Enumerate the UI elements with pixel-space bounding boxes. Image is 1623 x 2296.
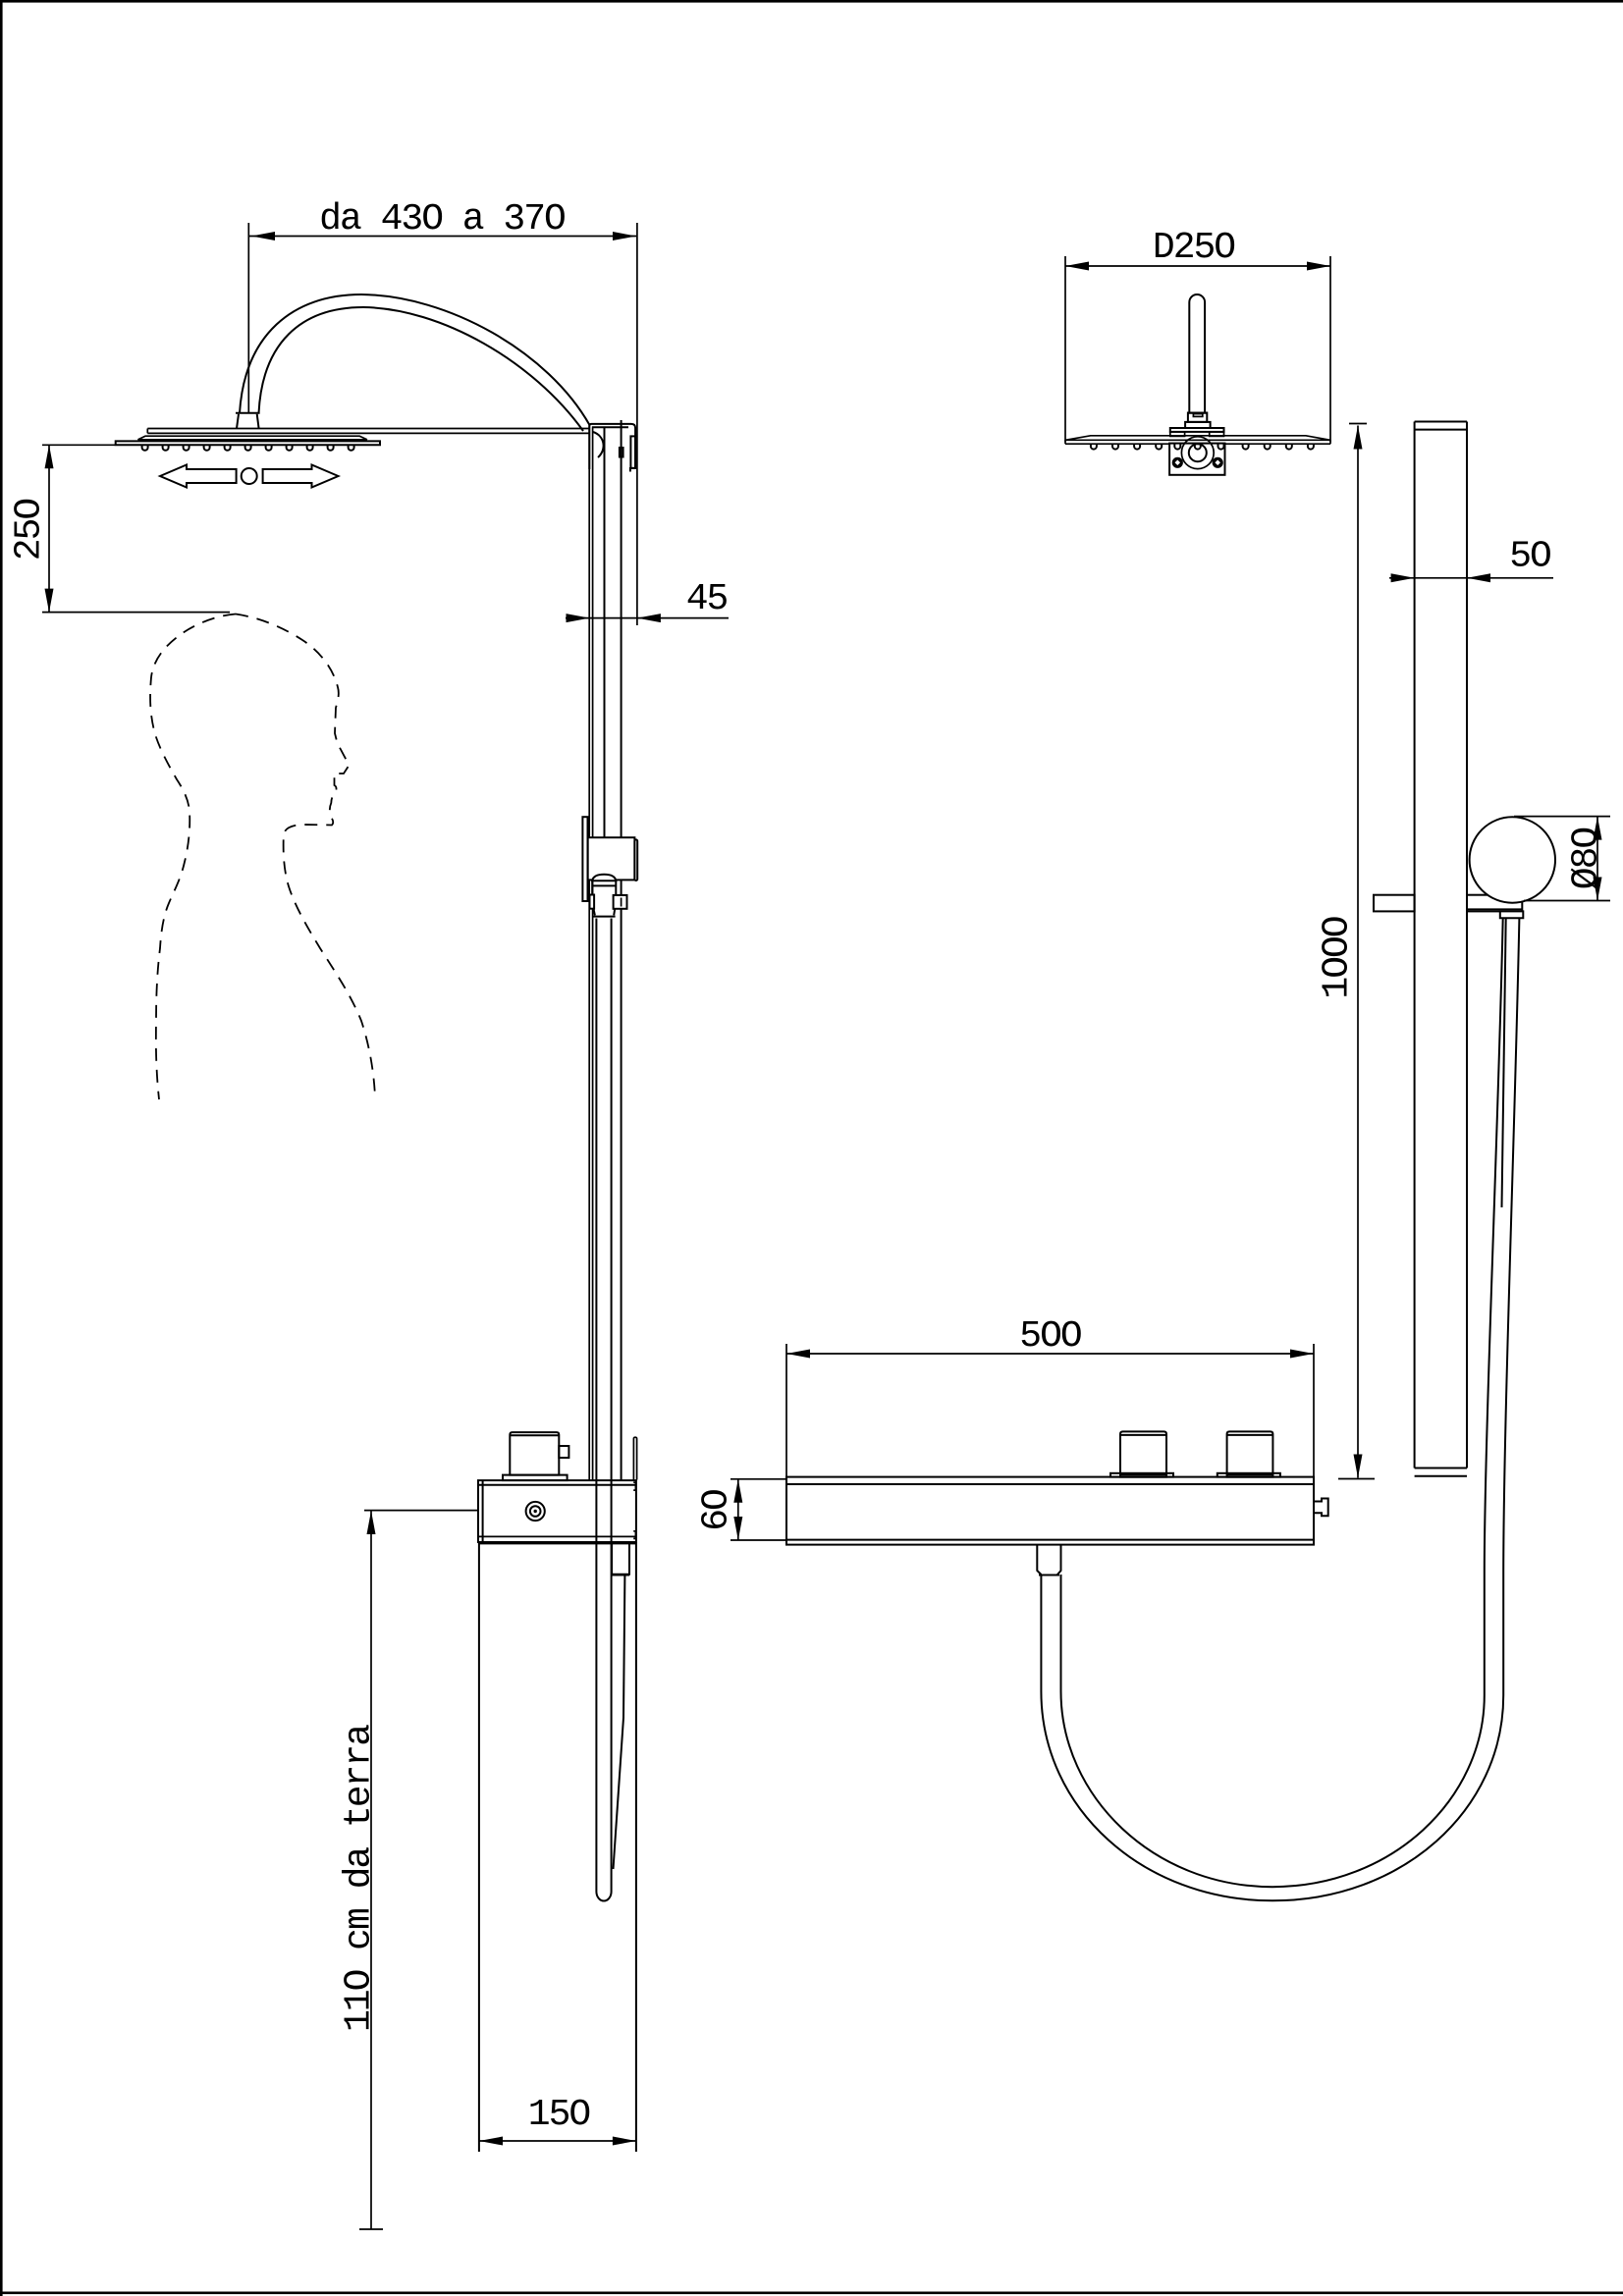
svg-text:45: 45	[686, 578, 728, 620]
svg-text:1OOO: 1OOO	[1317, 917, 1359, 998]
svg-text:D25O: D25O	[1153, 227, 1234, 269]
svg-text:Ø8O: Ø8O	[1566, 828, 1608, 890]
svg-text:6O: 6O	[696, 1490, 738, 1531]
svg-text:25O: 25O	[9, 500, 51, 561]
svg-text:5OO: 5OO	[1019, 1315, 1081, 1358]
svg-text:da 43O a 37O: da 43O a 37O	[319, 198, 565, 240]
svg-text:11O cm da terra: 11O cm da terra	[339, 1725, 381, 2032]
svg-text:15O: 15O	[528, 2094, 590, 2136]
svg-text:5O: 5O	[1509, 536, 1550, 578]
